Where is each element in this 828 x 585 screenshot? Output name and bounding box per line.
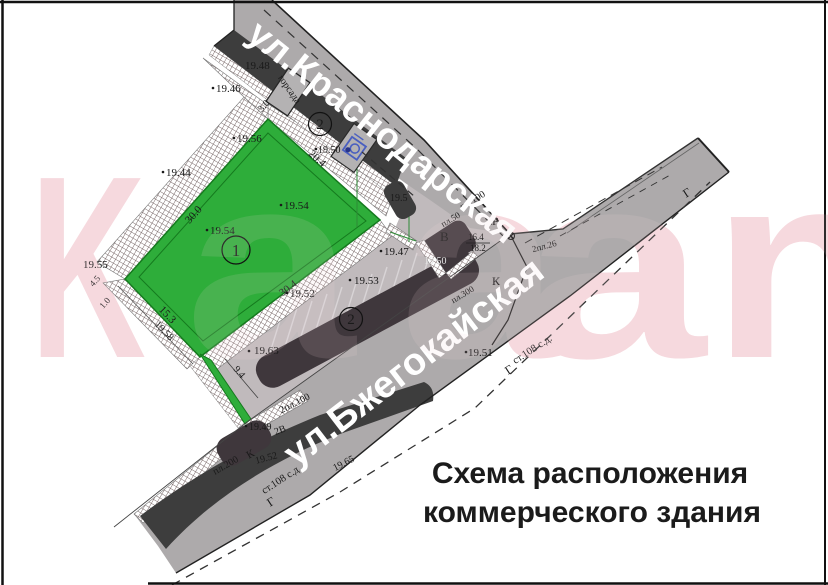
svg-text:a: a — [185, 118, 357, 414]
svg-text:Схема расположения: Схема расположения — [432, 457, 748, 490]
svg-text:19.49: 19.49 — [249, 422, 272, 433]
svg-text:K: K — [30, 123, 146, 413]
svg-text:a: a — [524, 118, 708, 414]
svg-text:n: n — [712, 118, 828, 414]
svg-text:19.53: 19.53 — [354, 275, 379, 287]
svg-text:19.46: 19.46 — [216, 83, 241, 95]
svg-text:коммерческого здания: коммерческого здания — [423, 496, 761, 529]
